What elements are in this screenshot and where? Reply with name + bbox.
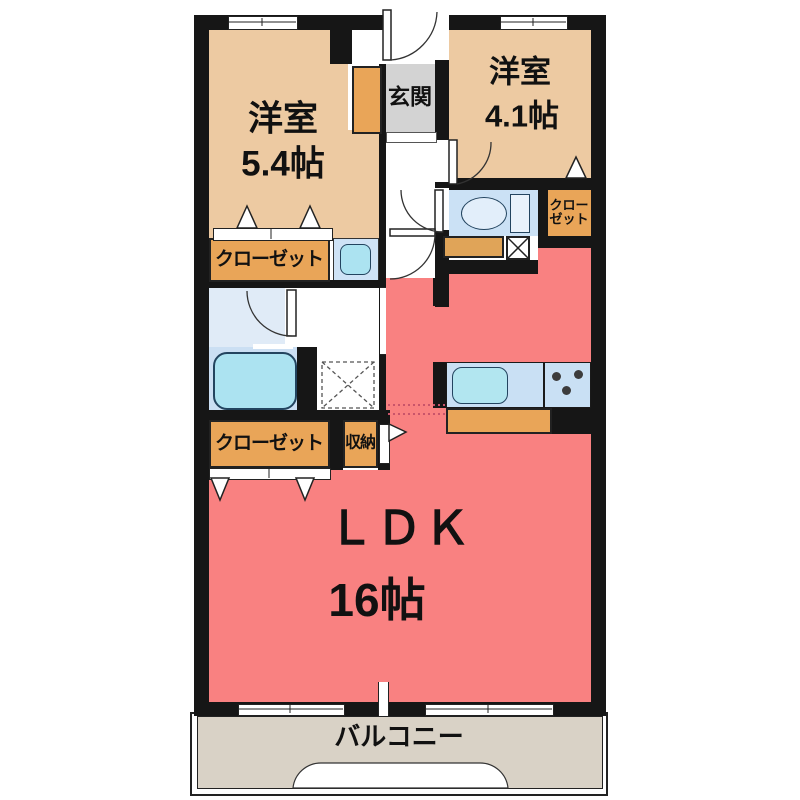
- window-bedroom1: [228, 16, 298, 30]
- entrance-label: 玄関: [388, 85, 432, 108]
- floor-plan: 洋室 5.4帖 洋室 4.1帖 玄関 クローゼット クロー ゼット クローゼット…: [0, 0, 800, 800]
- entrance-step: [386, 132, 437, 143]
- wall-hall-stub: [433, 278, 446, 306]
- closet-right-label: クロー ゼット: [549, 198, 588, 225]
- bedroom2-name: 洋室: [489, 57, 551, 90]
- closet-bottom-threshold: [209, 468, 331, 480]
- toilet-icon: [461, 197, 507, 230]
- washbasin-icon: [340, 244, 371, 275]
- wall-closet-divider: [330, 420, 343, 470]
- kitchen-counter-divider: [543, 362, 545, 408]
- bedroom2-size: 4.1帖: [485, 101, 559, 134]
- storage-door: [379, 424, 390, 464]
- room-bedroom1-floor: [209, 29, 330, 69]
- bath-door-gap: [253, 344, 293, 349]
- bathtub-icon: [213, 352, 297, 410]
- balcony-label: バルコニー: [334, 723, 463, 750]
- utility-corridor-floor: [317, 357, 379, 417]
- toilet-tank: [510, 194, 530, 233]
- kitchen-sink-icon: [452, 367, 508, 404]
- toilet-door-gap: [435, 188, 449, 230]
- wall-below-bath: [194, 410, 390, 420]
- wall-toilet-closet: [538, 190, 548, 236]
- storage-label: 収納: [345, 436, 375, 453]
- wall-below-toilet: [435, 260, 538, 274]
- closet-bottom-label: クローゼット: [215, 434, 323, 454]
- stove-burner-2: [574, 370, 583, 379]
- washroom-sliding-door: [380, 287, 386, 355]
- ldk-name: ＬＤＫ: [328, 504, 472, 552]
- stove-burner-1: [552, 372, 561, 381]
- bedroom2-door-gap: [435, 140, 449, 182]
- window-ldk-right: [425, 704, 554, 716]
- wall-left: [194, 15, 209, 716]
- wall-kitchen-left: [433, 362, 446, 408]
- bedroom1-size: 5.4帖: [241, 147, 325, 184]
- wall-below-bedroom2: [449, 178, 606, 190]
- wall-bed1-corner: [330, 15, 352, 64]
- front-door-gap: [385, 10, 449, 30]
- kitchen-lower-counter: [446, 408, 552, 434]
- pipe-space-box: [506, 236, 530, 260]
- closet-right-line1: クロー: [549, 198, 588, 212]
- washroom-door-leaf: [287, 290, 296, 336]
- wall-right: [591, 15, 606, 716]
- closet-top-threshold: [213, 228, 333, 241]
- washroom-floor: [209, 288, 285, 347]
- closet-top-label: クローゼット: [215, 250, 323, 270]
- hallway-floor: [386, 142, 435, 278]
- wall-bath-corridor: [297, 347, 317, 417]
- wall-kitchen-right-block: [552, 408, 591, 434]
- wall-below-closet-right: [538, 236, 606, 248]
- toilet-counter: [443, 236, 504, 258]
- window-ldk-left: [238, 704, 345, 716]
- ldk-size: 16帖: [328, 576, 425, 624]
- bedroom1-name: 洋室: [248, 102, 318, 139]
- shoe-cabinet: [352, 66, 382, 134]
- stove-burner-3: [562, 386, 571, 395]
- room-bedroom1-floor-notch: [348, 130, 381, 240]
- ldk-floor-left-mid: [386, 278, 449, 702]
- ldk-floor-mid: [449, 274, 591, 702]
- window-bedroom2: [500, 16, 568, 30]
- window-divider-slit: [378, 682, 389, 716]
- closet-right-line2: ゼット: [549, 212, 588, 226]
